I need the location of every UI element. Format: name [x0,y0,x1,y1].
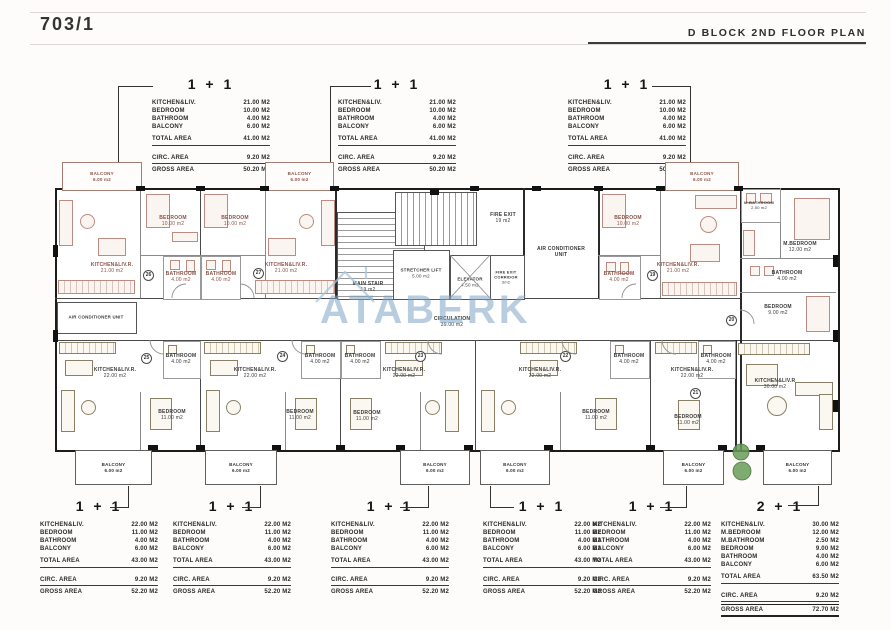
furniture-sofa [695,195,737,209]
furniture-table-round [80,214,95,229]
furniture-bed [806,296,830,332]
wall-column [260,186,269,191]
furniture-wc [750,266,760,276]
area-row: KITCHEN&LIV.22.00 M2 [331,521,449,529]
room-label-bedroom: BEDROOM10.00 m2 [221,215,249,228]
room-label-bathroom: BATHROOM4.00 m2 [345,353,376,366]
wall [740,258,836,259]
unit-number-badge: 26 [143,270,154,281]
area-row: BATHROOM4.00 M2 [152,115,270,123]
area-row: BALCONY6.00 M2 [40,545,158,553]
unit-type-title: 1 + 1 [173,498,291,514]
wall-column [430,189,439,195]
room-label-bathroom: BATHROOM4.00 m2 [772,270,803,283]
room-label-fire-exit-corridor: FIRE EXIT CORRIDOR3m2 [491,270,521,285]
room-label-bathroom: BATHROOM4.00 m2 [701,353,732,366]
furniture-kitchen-counter [204,342,261,354]
area-row: M.BATHROOM2.50 M2 [721,537,839,545]
room-label-bathroom: BATHROOM4.00 m2 [614,353,645,366]
total-area-row: TOTAL AREA43.00 M2 [331,557,449,568]
area-row: BATHROOM4.00 M2 [331,537,449,545]
balcony-bottom-3: BALCONY6.00 m2 [400,450,470,485]
area-row: BALCONY6.00 M2 [593,545,711,553]
room-label-m-bedroom: M.BEDROOM12.00 m2 [783,241,816,254]
balcony-top-2: BALCONY6.00 m2 [265,162,334,191]
unit-area-table: KITCHEN&LIV.22.00 M2BEDROOM11.00 M2BATHR… [40,521,158,553]
unit-type-title: 1 + 1 [40,498,158,514]
wall-column [196,186,205,191]
wall-column [53,330,58,342]
furniture-dining-table [268,238,296,256]
gross-area-row: GROSS AREA52.20 M2 [40,588,158,596]
circ-area-row: CIRC. AREA9.20 M2 [152,154,270,164]
furniture-kitchen-counter [59,342,116,354]
room-label-bedroom: BEDROOM11.00 m2 [286,409,314,422]
furniture-sofa [59,200,73,246]
wall-column [470,186,479,191]
unit-area-table: KITCHEN&LIV.21.00 M2BEDROOM10.00 M2BATHR… [152,99,270,131]
room-label-bathroom: BATHROOM4.00 m2 [166,353,197,366]
plan-title: D BLOCK 2ND FLOOR PLAN [688,27,866,39]
room-label-bedroom: BEDROOM10.00 m2 [159,215,187,228]
area-row: BEDROOM11.00 M2 [331,529,449,537]
balcony-bottom-2: BALCONY6.00 m2 [205,450,277,485]
unit-info-bottom-4: 1 + 1 KITCHEN&LIV.22.00 M2BEDROOM11.00 M… [483,498,601,596]
wall-column [53,245,58,257]
total-area-row: TOTAL AREA43.00 M2 [483,557,601,568]
room-label-ac-unit: AIR CONDITIONER UNIT [69,314,124,320]
unit-number-badge: 20 [726,315,737,326]
furniture-kitchen-counter [385,342,442,354]
leader-line [652,86,691,163]
wall-column [196,445,205,450]
room-label-kitchen: KITCHEN&LIV.R.22.00 m2 [94,367,136,380]
header-rule-dark [588,42,866,44]
unit-type-title: 1 + 1 [331,498,449,514]
leader-line [110,486,129,508]
unit-number-badge: 27 [253,268,264,279]
area-row: BALCONY6.00 M2 [721,561,839,569]
furniture-kitchen-counter [655,342,697,354]
gross-area-row: GROSS AREA52.20 M2 [173,588,291,596]
room-label-kitchen: KITCHEN&LIV.R.21.00 m2 [657,262,699,275]
area-row: BEDROOM11.00 M2 [40,529,158,537]
area-row: M.BEDROOM12.00 M2 [721,529,839,537]
room-label-bedroom: BEDROOM11.00 m2 [674,414,702,427]
wall-column [336,445,345,450]
area-row: KITCHEN&LIV.22.00 M2 [173,521,291,529]
total-area-row: TOTAL AREA43.00 M2 [173,557,291,568]
furniture-double-bed [794,198,830,240]
wall [650,340,651,450]
wall-column [148,445,158,450]
wall [740,188,742,450]
leader-line [330,86,371,166]
area-row: KITCHEN&LIV.21.00 M2 [152,99,270,107]
area-row: BALCONY6.00 M2 [483,545,601,553]
furniture-table-round [226,400,241,415]
header-rule [30,44,866,45]
area-row: BEDROOM11.00 M2 [593,529,711,537]
room-label-stretcher-lift: STRETCHER LIFT5.00 m2 [399,267,443,278]
area-row: BATHROOM4.00 M2 [173,537,291,545]
furniture-kitchen-counter [662,282,737,296]
unit-area-table: KITCHEN&LIV.22.00 M2BEDROOM11.00 M2BATHR… [331,521,449,553]
furniture-wardrobe [743,230,755,256]
unit-number-badge: 24 [277,351,288,362]
circ-area-row: CIRC. AREA9.20 M2 [483,576,601,586]
room-label-kitchen: KITCHEN&LIV.R.21.00 m2 [265,262,307,275]
gross-area-row: GROSS AREA50.20 M2 [338,166,456,174]
wall-column [833,255,838,267]
furniture-kitchen-counter [58,280,135,294]
circ-area-row: CIRC. AREA9.20 M2 [173,576,291,586]
wall [740,292,836,293]
balcony-bottom-5: BALCONY6.00 m2 [663,450,724,485]
wall-column [833,400,838,412]
unit-info-top-left: 1 + 1 KITCHEN&LIV.21.00 M2BEDROOM10.00 M… [152,76,270,174]
area-row: BATHROOM4.00 M2 [593,537,711,545]
room-label-ac-unit: AIR CONDITIONER UNIT [535,246,587,259]
wall [475,340,476,450]
furniture-wardrobe [172,232,198,242]
area-row: BATHROOM4.00 M2 [483,537,601,545]
wall-column [544,445,553,450]
furniture-table-round [425,400,440,415]
floor-plan-sheet: { "header": { "sheet_no": "703/1", "plan… [0,0,891,630]
gross-area-row: GROSS AREA72.70 M2 [721,604,839,617]
area-row: BATHROOM4.00 M2 [40,537,158,545]
unit-number-badge: 23 [415,351,426,362]
wall-column [646,445,655,450]
area-row: BALCONY6.00 M2 [331,545,449,553]
wall-column [734,186,743,191]
unit-area-table: KITCHEN&LIV.30.00 M2M.BEDROOM12.00 M2M.B… [721,521,839,569]
room-label-bathroom: BATHROOM4.00 m2 [166,271,197,284]
leader-line [242,486,261,508]
wall-column [833,330,838,342]
balcony-top-3: BALCONY6.00 m2 [665,162,739,191]
unit-number-badge: 25 [141,353,152,364]
total-area-row: TOTAL AREA43.00 M2 [593,557,711,568]
unit-number-badge: 22 [560,351,571,362]
furniture-sofa [819,394,833,430]
balcony-top-1: BALCONY6.00 m2 [62,162,142,191]
room-label-kitchen: KITCHEN&LIV.R.22.00 m2 [671,367,713,380]
furniture-sofa [321,200,335,246]
furniture-table-round [501,400,516,415]
unit-area-table: KITCHEN&LIV.22.00 M2BEDROOM11.00 M2BATHR… [483,521,601,553]
wall-column [330,186,339,191]
balcony-bottom-1: BALCONY6.00 m2 [75,450,152,485]
total-area-row: TOTAL AREA41.00 M2 [152,135,270,146]
room-label-elevator: ELEVATOR4.50 m2 [453,276,487,287]
unit-type-title: 1 + 1 [593,498,711,514]
room-label-bedroom: BEDROOM11.00 m2 [158,409,186,422]
leader-line [400,486,429,508]
wall [660,188,661,298]
room-label-bathroom: BATHROOM4.00 m2 [604,271,635,284]
wall-column [396,445,405,450]
unit-area-table: KITCHEN&LIV.22.00 M2BEDROOM11.00 M2BATHR… [173,521,291,553]
area-row: BEDROOM9.00 M2 [721,545,839,553]
unit-type-title: 2 + 1 [721,498,839,514]
wall-column [464,445,473,450]
leader-line [788,486,819,506]
area-row: BEDROOM11.00 M2 [483,529,601,537]
room-label-bathroom: BATHROOM4.00 m2 [206,271,237,284]
unit-info-bottom-2: 1 + 1 KITCHEN&LIV.22.00 M2BEDROOM11.00 M… [173,498,291,596]
gross-area-row: GROSS AREA52.20 M2 [331,588,449,596]
unit-number-badge: 21 [690,388,701,399]
furniture-sofa [61,390,75,432]
wall [140,188,141,298]
room-label-kitchen: KITCHEN&LIV.R30.00 m2 [755,378,796,391]
area-row: BALCONY6.00 M2 [173,545,291,553]
room-label-kitchen: KITCHEN&LIV.R.22.00 m2 [383,367,425,380]
page-top-rule [30,12,866,13]
wall-column [532,186,541,191]
furniture-wc [206,260,216,270]
leader-line [660,486,687,508]
room-label-bedroom: BEDROOM10.00 m2 [614,215,642,228]
circ-area-row: CIRC. AREA9.20 M2 [331,576,449,586]
furniture-dining-table [98,238,126,256]
room-label-m-bathroom: M.BATHROOM2.50 m2 [744,200,774,210]
circ-area-row: CIRC. AREA9.20 M2 [721,592,839,602]
area-row: KITCHEN&LIV.22.00 M2 [483,521,601,529]
room-label-bedroom: BEDROOM9.00 m2 [764,304,792,317]
wall-column [718,445,727,450]
wall-column [272,445,281,450]
room-label-bathroom: BATHROOM4.00 m2 [305,353,336,366]
fire-exit-stair [395,192,477,246]
total-area-row: TOTAL AREA43.00 M2 [40,557,158,568]
area-row: KITCHEN&LIV.30.00 M2 [721,521,839,529]
circ-area-row: CIRC. AREA9.20 M2 [40,576,158,586]
furniture-sofa [445,390,459,432]
unit-info-bottom-2plus1: 2 + 1 KITCHEN&LIV.30.00 M2M.BEDROOM12.00… [721,498,839,617]
wall-column [594,186,603,191]
gross-area-row: GROSS AREA52.20 M2 [483,588,601,596]
unit-area-table: KITCHEN&LIV.22.00 M2BEDROOM11.00 M2BATHR… [593,521,711,553]
furniture-dining-table [65,360,93,376]
room-label-fire-exit: FIRE EXIT19 m2 [490,212,516,225]
furniture-sofa [206,390,220,432]
furniture-table-round [767,396,787,416]
area-row: KITCHEN&LIV.22.00 M2 [40,521,158,529]
wall [560,392,561,450]
area-row: KITCHEN&LIV.22.00 M2 [593,521,711,529]
room-label-kitchen: KITCHEN&LIV.R.21.00 m2 [91,262,133,275]
circ-area-row: CIRC. AREA9.20 M2 [593,576,711,586]
wall-column [136,186,145,191]
furniture-dining-table [690,244,720,262]
furniture-table-round [81,400,96,415]
gross-area-row: GROSS AREA52.20 M2 [593,588,711,596]
wall [420,392,421,450]
room-label-bedroom: BEDROOM11.00 m2 [582,409,610,422]
total-area-row: TOTAL AREA63.50 M2 [721,573,839,584]
area-row: BATHROOM4.00 M2 [721,553,839,561]
wall-column [756,445,765,450]
balcony-bottom-6: BALCONY6.00 m2 [763,450,832,485]
area-row: BALCONY6.00 M2 [152,123,270,131]
area-row: BEDROOM11.00 M2 [173,529,291,537]
furniture-wc [170,260,180,270]
unit-info-bottom-3: 1 + 1 KITCHEN&LIV.22.00 M2BEDROOM11.00 M… [331,498,449,596]
balcony-bottom-4: BALCONY6.00 m2 [480,450,550,485]
area-row: BEDROOM10.00 M2 [152,107,270,115]
unit-number-badge: 19 [647,270,658,281]
furniture-table-round [700,216,717,233]
gross-area-row: GROSS AREA50.20 M2 [152,166,270,174]
watermark: ATABERK [320,288,531,333]
wall [140,392,141,450]
wall-column [656,186,665,191]
unit-type-title: 1 + 1 [152,76,270,92]
room-label-bedroom: BEDROOM11.00 m2 [353,410,381,423]
furniture-table-round [299,214,314,229]
room-label-kitchen: KITCHEN&LIV.R.22.00 m2 [234,367,276,380]
furniture-kitchen-counter [738,343,810,355]
leader-line [118,86,153,163]
room-label-kitchen: KITCHEN&LIV.R.22.00 m2 [519,367,561,380]
unit-info-bottom-1: 1 + 1 KITCHEN&LIV.22.00 M2BEDROOM11.00 M… [40,498,158,596]
sheet-number: 703/1 [40,14,95,35]
leader-line [490,486,514,508]
unit-info-bottom-5: 1 + 1 KITCHEN&LIV.22.00 M2BEDROOM11.00 M… [593,498,711,596]
furniture-sofa [481,390,495,432]
